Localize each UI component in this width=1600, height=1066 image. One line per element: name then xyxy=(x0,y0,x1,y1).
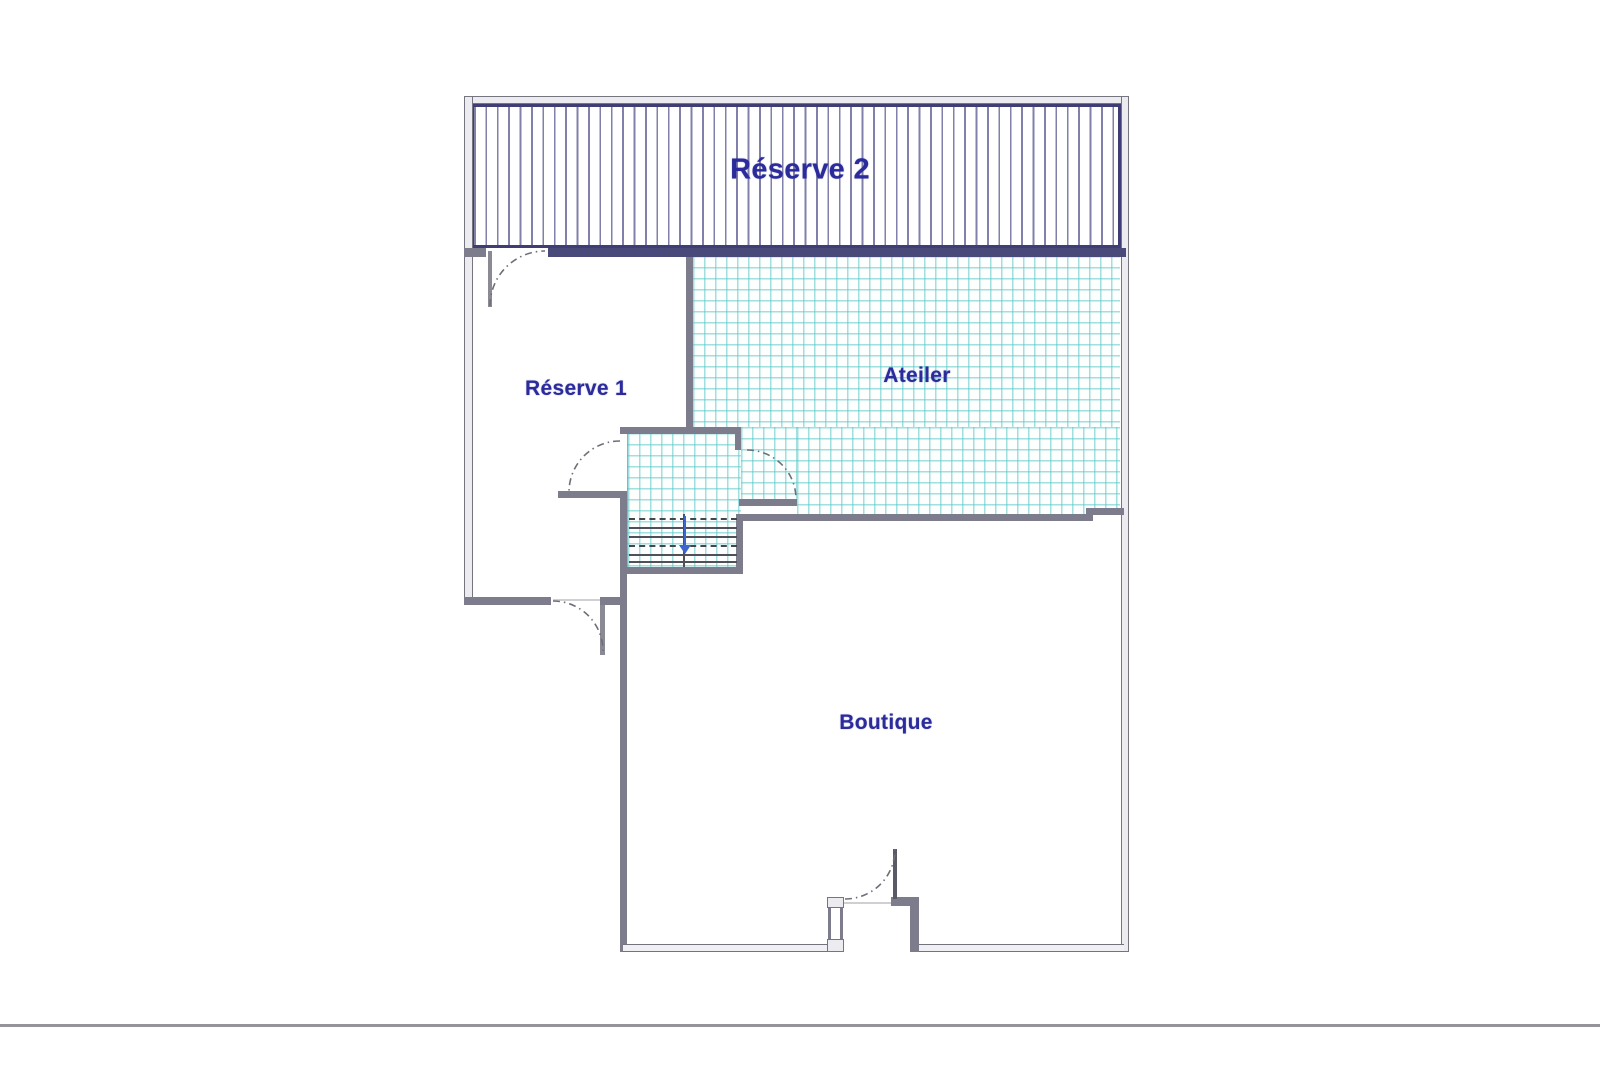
room-label-atelier: Ateiler xyxy=(883,364,950,388)
door-arc-corridor-left xyxy=(569,441,620,492)
room-label-reserve-1: Réserve 1 xyxy=(525,377,627,401)
door-arc-entrance xyxy=(845,849,895,899)
door-arc-reserve2 xyxy=(490,251,545,306)
floorplan-canvas: Réserve 2 Réserve 1 Ateiler Boutique xyxy=(0,0,1600,1066)
room-label-boutique: Boutique xyxy=(839,711,932,735)
room-label-reserve-2: Réserve 2 xyxy=(730,154,870,187)
door-arc-reserve1-bottom xyxy=(553,601,603,651)
door-arc-corridor-right xyxy=(747,450,796,499)
